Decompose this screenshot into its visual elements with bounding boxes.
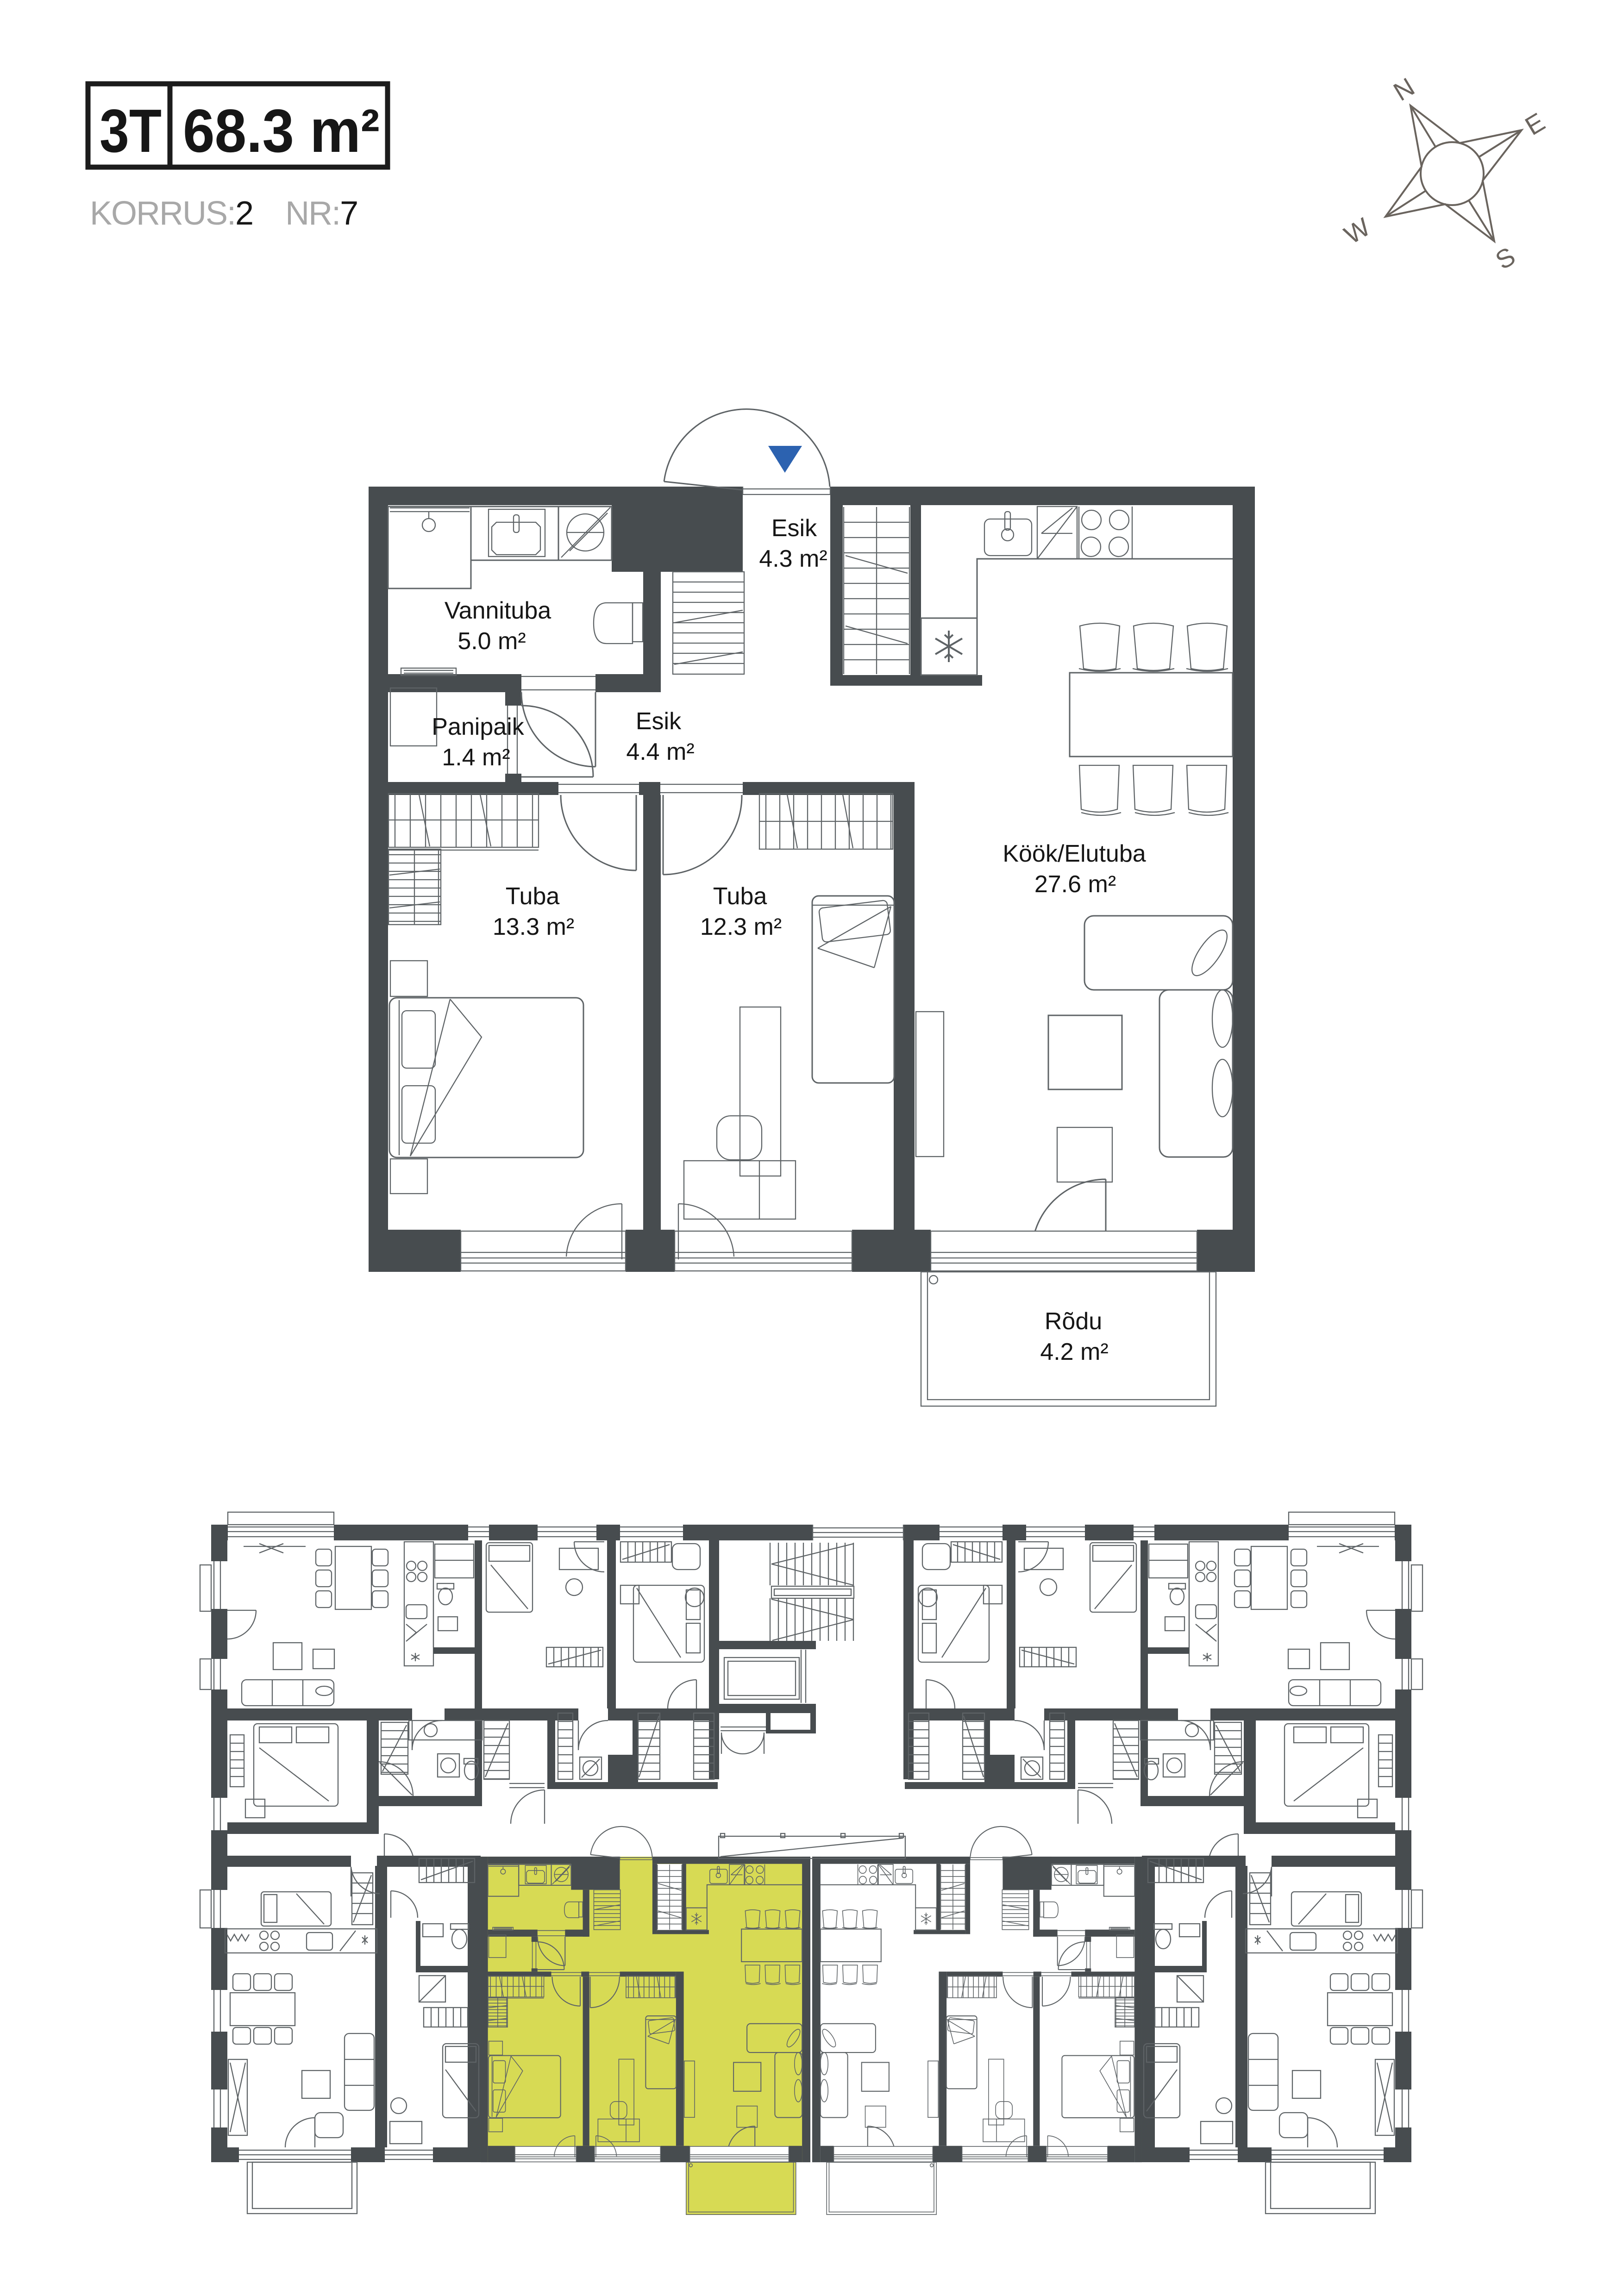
svg-text:68.3 m²: 68.3 m² — [183, 97, 380, 165]
svg-text:S: S — [1491, 241, 1520, 275]
svg-text:Rõdu: Rõdu — [1045, 1308, 1102, 1335]
svg-text:4.2 m²: 4.2 m² — [1040, 1339, 1108, 1365]
svg-text:1.4 m²: 1.4 m² — [442, 744, 510, 771]
svg-text:5.0 m²: 5.0 m² — [457, 628, 526, 655]
svg-text:E: E — [1520, 107, 1550, 141]
svg-text:Panipaik: Panipaik — [432, 713, 524, 740]
svg-text:4.4 m²: 4.4 m² — [626, 738, 694, 765]
svg-text:13.3 m²: 13.3 m² — [493, 913, 574, 940]
svg-text:W: W — [1339, 212, 1375, 250]
svg-text:Tuba: Tuba — [506, 883, 560, 910]
svg-text:Tuba: Tuba — [713, 883, 767, 910]
svg-text:Köök/Elutuba: Köök/Elutuba — [1003, 840, 1146, 867]
svg-text:Vannituba: Vannituba — [445, 597, 551, 624]
svg-text:N: N — [1388, 72, 1419, 106]
svg-text:27.6 m²: 27.6 m² — [1034, 871, 1116, 898]
svg-text:4.3 m²: 4.3 m² — [759, 545, 827, 572]
svg-text:3T: 3T — [100, 97, 162, 165]
svg-text:Esik: Esik — [636, 708, 682, 735]
svg-text:12.3 m²: 12.3 m² — [700, 913, 782, 940]
svg-text:KORRUS:2NR:7: KORRUS:2NR:7 — [90, 195, 357, 232]
svg-text:Esik: Esik — [771, 515, 817, 542]
